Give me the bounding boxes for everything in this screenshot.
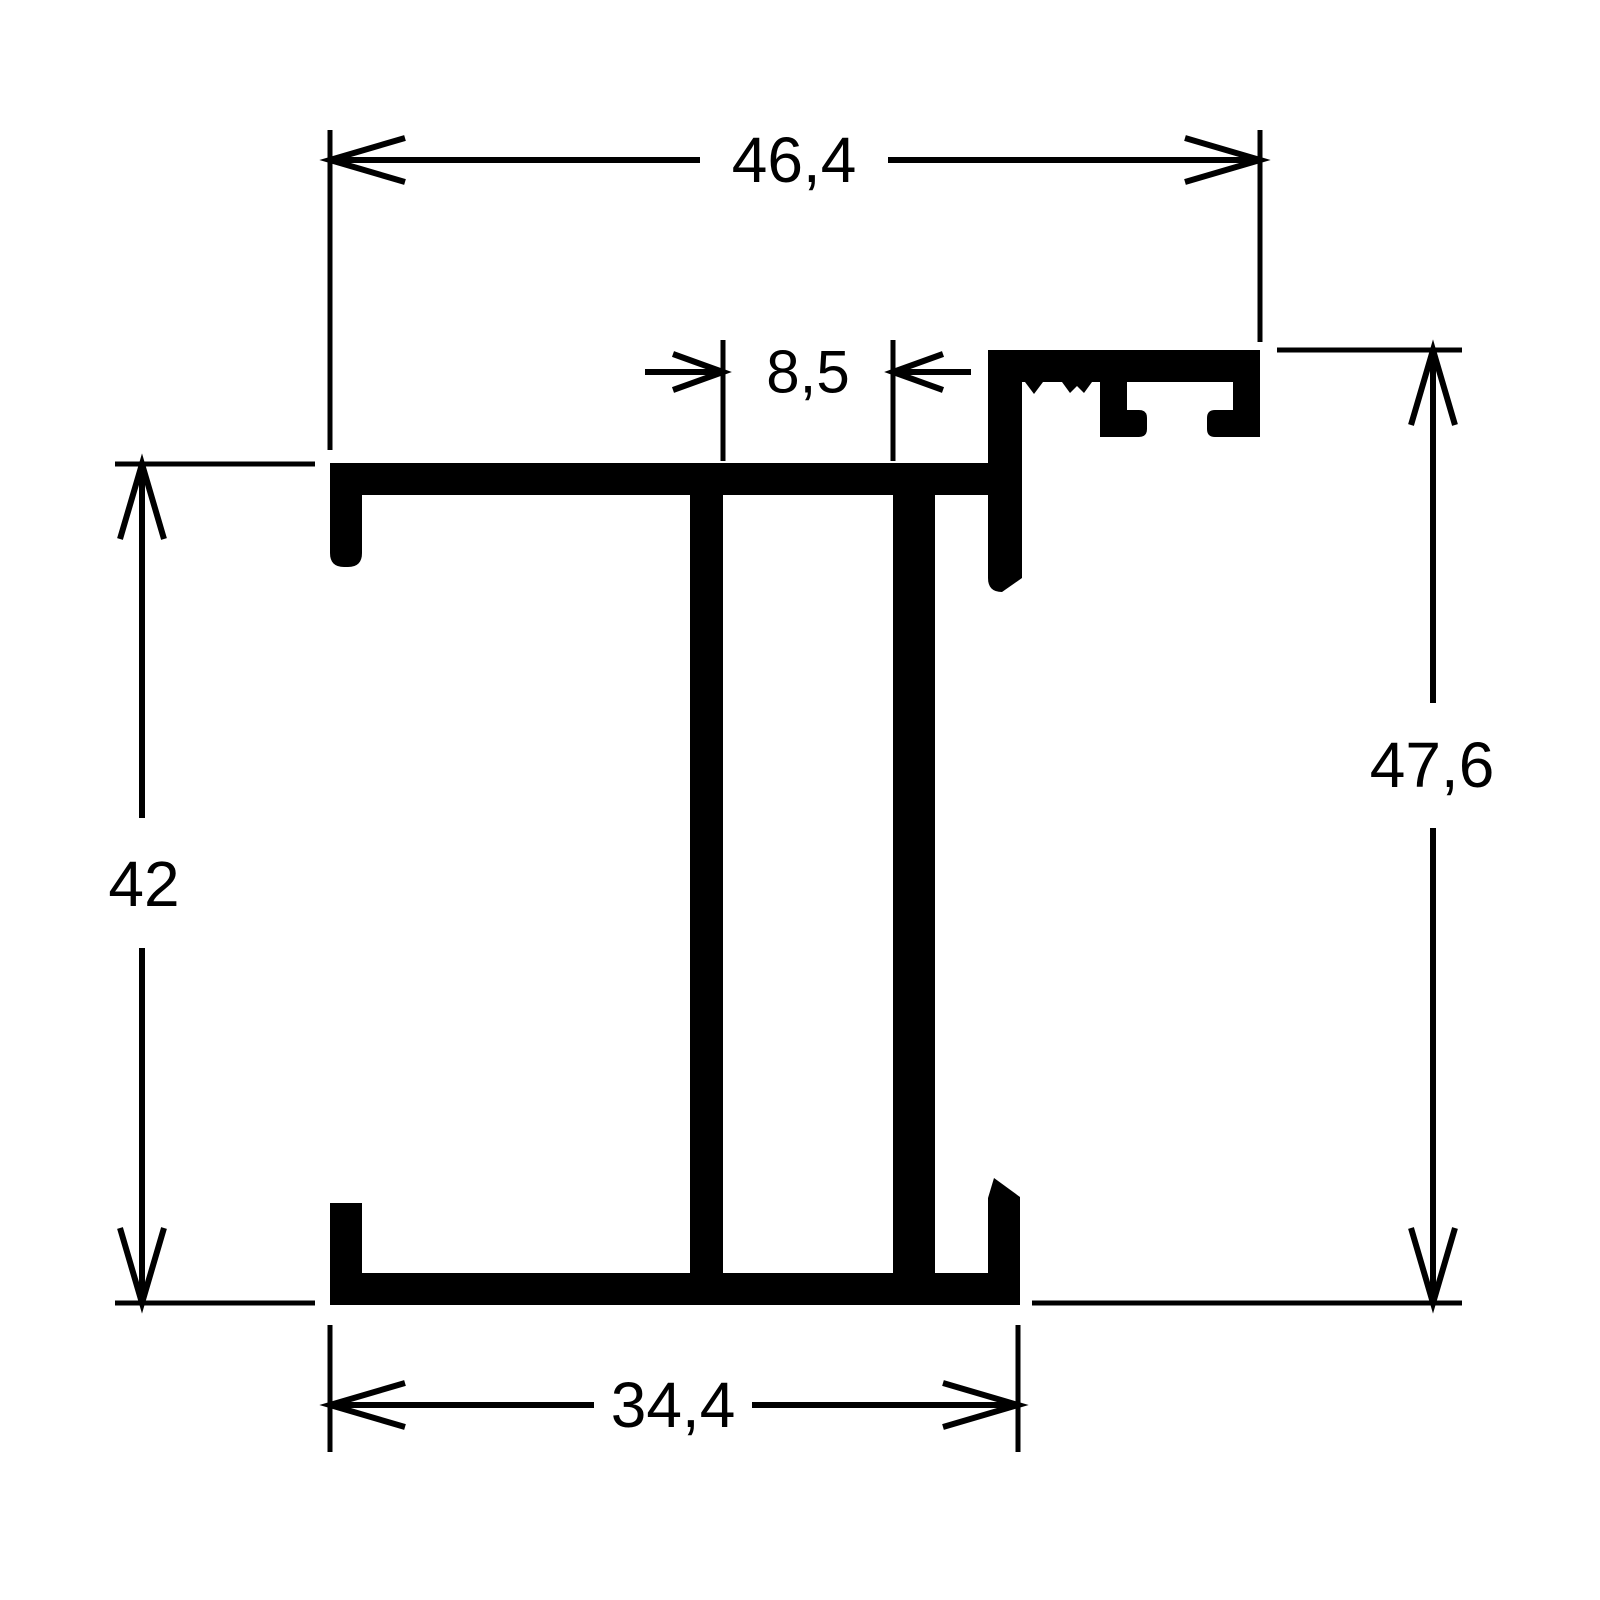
dim-label-top-width: 46,4 xyxy=(732,124,857,196)
cavity-lower-right-slot xyxy=(935,1120,988,1273)
web-right xyxy=(893,463,935,1305)
dim-label-web-gap: 8,5 xyxy=(766,339,849,406)
dimension-right-height xyxy=(1032,350,1462,1303)
right-wall xyxy=(988,350,1022,592)
technical-drawing-page: 46,4 8,5 42 47,6 34,4 xyxy=(0,0,1600,1600)
profile-cross-section-drawing: 46,4 8,5 42 47,6 34,4 xyxy=(0,0,1600,1600)
serration-teeth xyxy=(1025,382,1092,394)
channel-hook-right xyxy=(1207,382,1260,437)
dim-label-left-height: 42 xyxy=(108,848,179,920)
channel-hook-left xyxy=(1100,382,1147,437)
cavity-main-left xyxy=(362,495,690,1273)
web-left xyxy=(690,463,723,1305)
dim-label-bottom-width: 34,4 xyxy=(611,1369,736,1441)
dim-label-right-height: 47,6 xyxy=(1370,729,1495,801)
glazing-channel-top-bar xyxy=(988,350,1260,382)
left-bottom-lip xyxy=(330,1203,362,1305)
right-bottom-lip xyxy=(988,1178,1020,1305)
cavity-center-channel xyxy=(723,495,893,1273)
left-top-leg xyxy=(330,463,362,567)
cavity-upper-right-slot xyxy=(935,495,988,645)
bottom-flange xyxy=(330,1273,1020,1305)
